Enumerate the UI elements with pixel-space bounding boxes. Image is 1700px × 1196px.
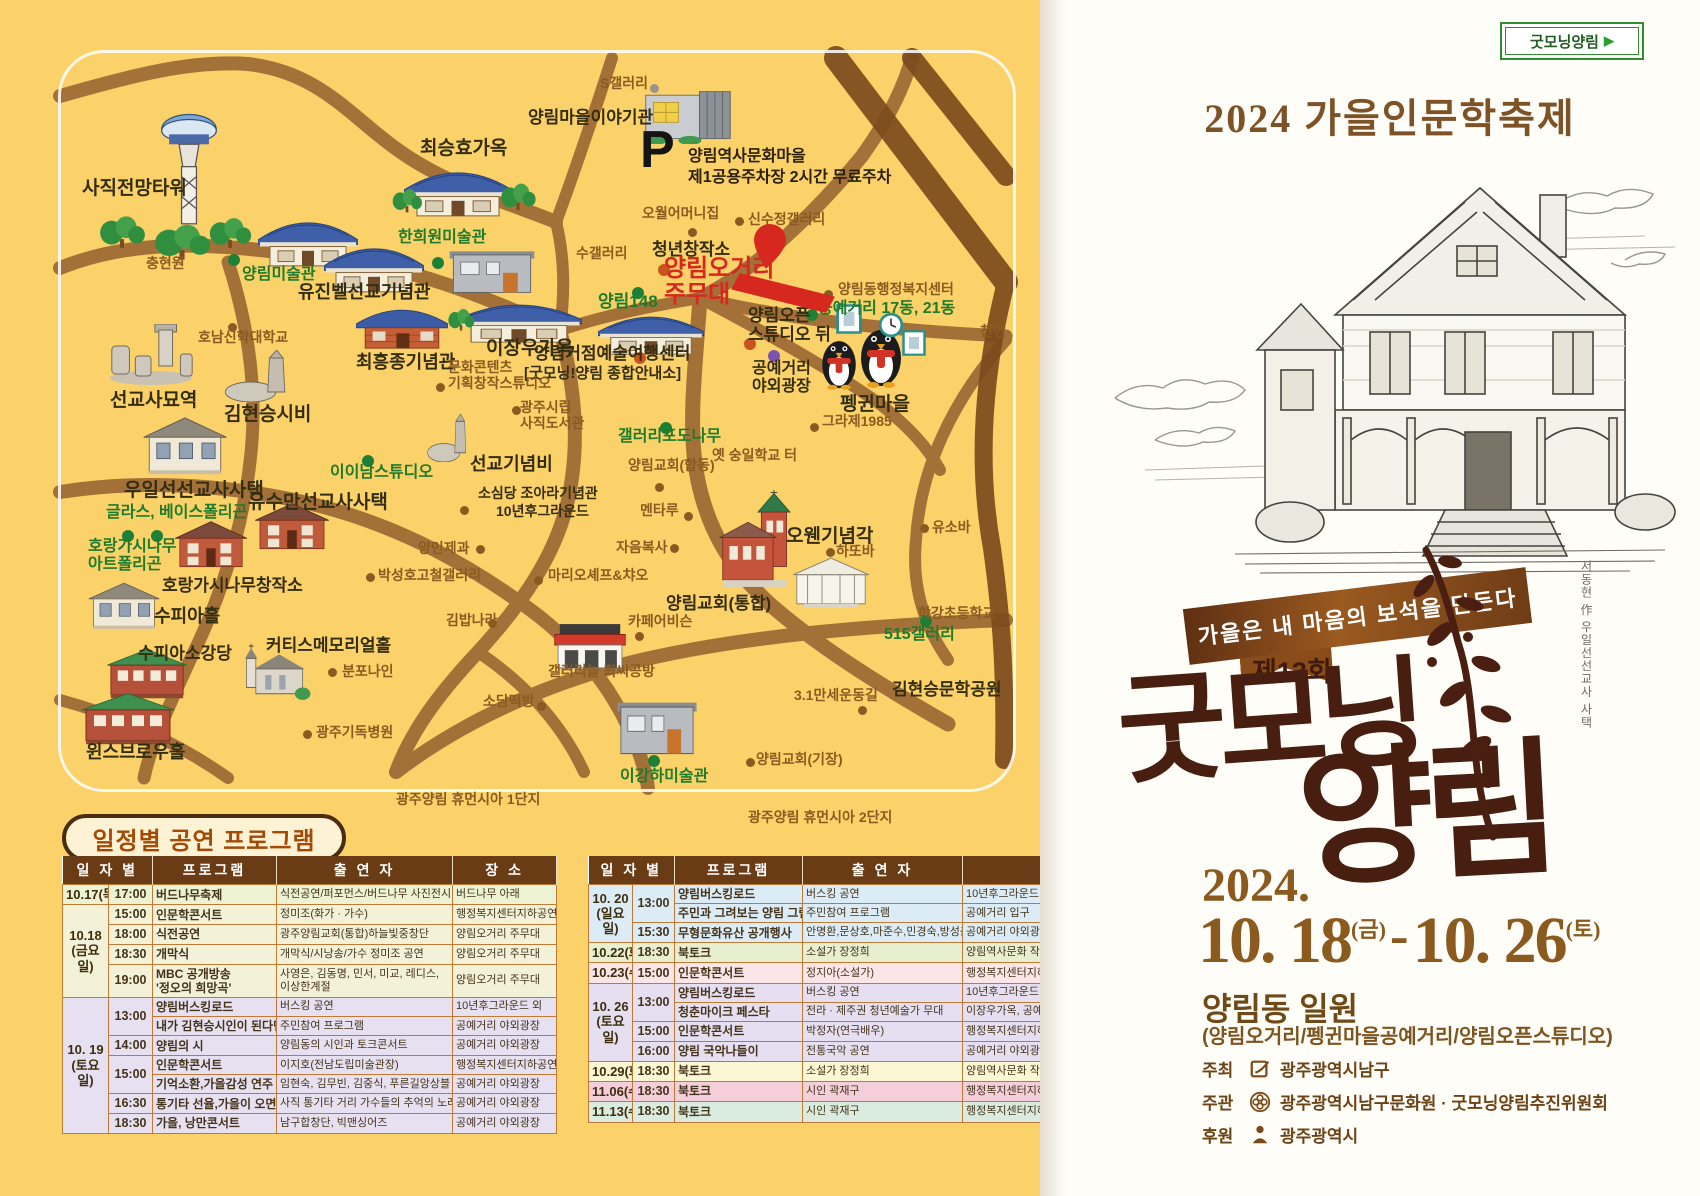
- schedule-section-title: 일정별 공연 프로그램: [62, 814, 346, 862]
- map-label: 공예거리 야외광장: [752, 360, 811, 396]
- gray2-illustration-icon: [614, 696, 700, 758]
- map-label: 유소바: [932, 520, 971, 536]
- schedule-performer: 전통국악 공연: [803, 1041, 963, 1061]
- map-marker-dot: [328, 668, 337, 677]
- schedule-program: 북토크: [675, 1061, 803, 1081]
- map-label: 양림교회(합동): [628, 458, 715, 474]
- artwork-credit: 서동현 作 우일선선교사 사택: [1578, 560, 1595, 790]
- map-label: 공예거리 17동, 21동: [818, 300, 955, 318]
- date-start-day: (금): [1351, 912, 1386, 944]
- schedule-row: 18:30개막식개막식/시낭송/가수 정미조 공연양림오거리 주무대: [63, 944, 557, 964]
- schedule-venue: 행정복지센터지하공연장: [963, 1102, 1040, 1122]
- map-label: 양림미술관: [242, 266, 316, 284]
- date-start: 10. 18: [1198, 908, 1351, 974]
- schedule-date: 10.22(화): [589, 943, 633, 963]
- schedule-time: 13:00: [109, 997, 153, 1035]
- schedule-column-header: 출 연 자: [803, 856, 963, 885]
- map-marker-dot: [688, 228, 697, 237]
- schedule-date: 11.06(수): [589, 1081, 633, 1101]
- map-label: 유수만선교사사택: [248, 492, 388, 513]
- schedule-performer: 양림동의 시인과 토크콘서트: [277, 1036, 453, 1056]
- schedule-performer: 박정자(연극배우): [803, 1022, 963, 1042]
- schedule-performer: 광주양림교회(통합)하늘빛중창단: [277, 925, 453, 945]
- schedule-row: 10.17(목)17:00버드나무축제식전공연/퍼포먼스/버드나무 사진전시버드…: [63, 885, 557, 905]
- schedule-table-week1: 일 자 별프로그램출 연 자장 소10.17(목)17:00버드나무축제식전공연…: [62, 856, 557, 1134]
- schedule-date: 10. 26 (토요일): [589, 983, 633, 1061]
- schedule-performer: 버스킹 공연: [803, 983, 963, 1002]
- schedule-program: 인문학콘서트: [675, 963, 803, 983]
- schedule-venue: 양림역사문화 작은도서관: [963, 1061, 1040, 1081]
- schedule-performer: 사영은, 김동명, 민서, 미교, 레디스, 이상한계절: [277, 964, 453, 997]
- organizer-list: 주최광주광역시남구주관광주광역시남구문화원 · 굿모닝양림추진위원회후원광주광역…: [1202, 1056, 1608, 1147]
- schedule-performer: 소설가 장정희: [803, 943, 963, 963]
- schedule-venue: 행정복지센터지하공연장: [963, 1081, 1040, 1101]
- schedule-venue: 공예거리 야외광장: [453, 1017, 557, 1036]
- map-label: 우일선선교사사택: [124, 480, 264, 501]
- schedule-program: 인문학콘서트: [153, 1055, 277, 1074]
- map-label: 사직전망타워: [82, 178, 187, 199]
- map-label: 양림교회(통합): [666, 594, 771, 613]
- western-illustration-icon: [84, 580, 164, 632]
- schedule-program: 주민과 그려보는 양림 그림여행: [675, 904, 803, 923]
- schedule-venue: 공예거리 야외광장: [963, 923, 1040, 943]
- schedule-time: 18:30: [633, 943, 675, 963]
- map-label: 3.1만세운동길: [794, 688, 878, 704]
- map-label: 양림거점예술여행센터: [534, 344, 690, 363]
- venue-detail: (양림오거리/펭귄마을공예거리/양림오픈스튜디오): [1202, 1020, 1613, 1049]
- schedule-row: 11.13(수)18:30북토크시인 곽재구행정복지센터지하공연장: [589, 1102, 1041, 1122]
- organizer-logo-icon: [1249, 1058, 1271, 1080]
- map-label: 문화콘텐츠 기획창작스튜디오: [448, 360, 551, 391]
- schedule-column-header: 일 자 별: [63, 856, 153, 885]
- schedule-time: 15:00: [109, 905, 153, 925]
- classic-illustration-icon: [786, 554, 876, 608]
- schedule-performer: 안명환,문상호,마준수,민경숙,방성춘,황승옥: [803, 923, 963, 943]
- schedule-program: 버드나무축제: [153, 885, 277, 905]
- map-label: 옛 숭일학교 터: [712, 448, 797, 464]
- frame-illustration-icon: [902, 330, 926, 356]
- penguin-illustration-icon: [818, 336, 860, 390]
- map-marker-dot: [746, 758, 755, 767]
- map-label: 최흥종기념관: [356, 352, 455, 372]
- map-label: 양림마을이야기관: [528, 108, 653, 127]
- map-marker-dot: [436, 383, 445, 392]
- map-marker-dot: [735, 217, 744, 226]
- organizer-role: 주관: [1202, 1089, 1240, 1114]
- map-label: 수피아홀: [154, 606, 220, 626]
- tree-illustration-icon: [498, 180, 538, 212]
- map-label: 김밥나라: [446, 613, 498, 629]
- schedule-program: 양림버스킹로드: [675, 885, 803, 904]
- map-label: 광주양림 휴먼시아 1단지: [396, 792, 540, 808]
- schedule-performer: 주민참여 프로그램: [277, 1017, 453, 1036]
- pamphlet-page: 양림마을이야기관최승효가옥사직전망타워유진벨선교기념관최흥종기념관이장우가옥선교…: [0, 0, 1700, 1196]
- schedule-program: MBC 공개방송 '정오의 희망곡': [153, 964, 277, 997]
- schedule-performer: 이지호(전남도립미술관장): [277, 1055, 453, 1074]
- schedule-date: 10.18 (금요일): [63, 905, 109, 998]
- schedule-table-week2: 일 자 별프로그램출 연 자10. 20 (일요일)13:00양림버스킹로드버스…: [588, 856, 1040, 1123]
- schedule-time: 15:00: [633, 963, 675, 983]
- organizer-row: 주관광주광역시남구문화원 · 굿모닝양림추진위원회: [1202, 1089, 1608, 1114]
- schedule-venue: 공예거리 입구: [963, 904, 1040, 923]
- map-panel: 양림마을이야기관최승효가옥사직전망타워유진벨선교기념관최흥종기념관이장우가옥선교…: [0, 0, 1040, 1196]
- map-label: 김현승시비: [224, 404, 311, 425]
- schedule-venue: 공예거리 야외광장: [453, 1094, 557, 1114]
- organizer-logo-icon: [1249, 1124, 1271, 1146]
- map-marker-dot: [460, 506, 469, 515]
- map-label: 최승효가옥: [420, 138, 507, 159]
- organizer-name: 광주광역시남구: [1280, 1056, 1389, 1081]
- map-label: 김현승문학공원: [892, 680, 1001, 699]
- date-end-day: (토): [1566, 912, 1601, 944]
- map-marker-dot: [858, 706, 867, 715]
- map-label: 카페어비슨: [628, 614, 692, 630]
- map-label: 갤러리늘 최씨공방: [548, 664, 655, 680]
- schedule-row: 16:30통기타 선율,가을이 오면사직 통기타 거리 가수들의 추억의 노래공…: [63, 1094, 557, 1114]
- map-marker-dot: [303, 730, 312, 739]
- schedule-time: 15:30: [633, 923, 675, 943]
- map-label: 천변: [980, 324, 1006, 340]
- schedule-program: 기억소환,가을감성 연주: [153, 1075, 277, 1094]
- schedule-program: 양림 국악나들이: [675, 1041, 803, 1061]
- map-label: 양림교회(기장): [756, 752, 843, 768]
- map-label: 양림동행정복지센터: [838, 282, 954, 298]
- schedule-row: 15:00인문학콘서트이지호(전남도립미술관장)행정복지센터지하공연장: [63, 1055, 557, 1074]
- map-label: 그라제1985: [822, 414, 892, 430]
- schedule-row: 14:00양림의 시양림동의 시인과 토크콘서트공예거리 야외광장: [63, 1036, 557, 1056]
- schedule-row: 10.22(화)18:30북토크소설가 장정희양림역사문화 작은도서관: [589, 943, 1041, 963]
- map-label: 커티스메모리얼홀: [266, 636, 391, 655]
- schedule-column-header: 장 소: [453, 856, 557, 885]
- map-marker-dot: [670, 544, 679, 553]
- map-marker-dot: [476, 545, 485, 554]
- map-label: 갤러리포도나무: [618, 428, 721, 446]
- map-label: 분포나인: [342, 664, 394, 680]
- schedule-row: 10. 19 (토요일)13:00양림버스킹로드버스킹 공연10년후그라운드 외: [63, 997, 557, 1016]
- poster-title: 2024 가을인문학축제: [1120, 86, 1660, 144]
- schedule-program: 양림버스킹로드: [153, 997, 277, 1016]
- map-marker-dot: [537, 702, 546, 711]
- map-label: 이이남스튜디오: [330, 464, 433, 482]
- schedule-time: 18:00: [109, 925, 153, 945]
- tower-illustration-icon: [146, 112, 232, 230]
- schedule-date: 10. 19 (토요일): [63, 997, 109, 1133]
- schedule-row: 10.29(화)18:30북토크소설가 장정희양림역사문화 작은도서관: [589, 1061, 1041, 1081]
- schedule-program: 식전공연: [153, 925, 277, 945]
- schedule-column-header: 프로그램: [675, 856, 803, 885]
- badge-arrow-icon: ▶: [1604, 33, 1614, 49]
- organizer-role: 주최: [1202, 1056, 1240, 1081]
- organizer-role: 후원: [1202, 1122, 1240, 1147]
- schedule-time: 18:30: [633, 1061, 675, 1081]
- schedule-row: 15:00인문학콘서트박정자(연극배우)행정복지센터지하공연장: [589, 1022, 1041, 1042]
- stage-pin-icon: [749, 222, 789, 272]
- map-label: 충현원: [146, 256, 185, 272]
- schedule-program: 양림버스킹로드: [675, 983, 803, 1002]
- map-marker-dot: [684, 512, 693, 521]
- schedule-date: 11.13(수): [589, 1102, 633, 1122]
- map-label: 호랑가시나무창작소: [162, 576, 303, 595]
- festival-dates: 10. 18 (금) - 10. 26 (토): [1198, 908, 1600, 974]
- map-label: 광주양림 휴먼시아 2단지: [748, 810, 892, 826]
- map-label: 515갤러리: [884, 626, 955, 644]
- schedule-date: 10.29(화): [589, 1061, 633, 1081]
- schedule-venue: 양림오거리 주무대: [453, 925, 557, 945]
- map-marker-dot: [826, 548, 835, 557]
- tree-illustration-icon: [206, 214, 254, 250]
- schedule-performer: 시인 곽재구: [803, 1081, 963, 1101]
- map-label: 마리오셰프&챠오: [548, 568, 648, 584]
- schedule-column-header: 프로그램: [153, 856, 277, 885]
- brickgreen-illustration-icon: [78, 690, 178, 746]
- map-label: S갤러리: [600, 76, 648, 92]
- map-marker-dot: [920, 524, 929, 533]
- map-label: 유진벨선교기념관: [298, 282, 430, 302]
- schedule-program: 개막식: [153, 944, 277, 964]
- schedule-venue: 양림오거리 주무대: [453, 964, 557, 997]
- tree-illustration-icon: [390, 186, 424, 214]
- stones-illustration-icon: [102, 324, 200, 386]
- schedule-venue: 공예거리 야외광장: [453, 1036, 557, 1056]
- schedule-time: 19:00: [109, 964, 153, 997]
- schedule-performer: 소설가 장정희: [803, 1061, 963, 1081]
- schedule-venue: 양림역사문화 작은도서관: [963, 943, 1040, 963]
- schedule-venue: 행정복지센터지하공연장: [963, 963, 1040, 983]
- page-fold-shadow: [1040, 0, 1066, 1196]
- gray2-illustration-icon: [446, 246, 538, 296]
- date-end: 10. 26: [1413, 908, 1566, 974]
- map-label: 호남신학대학교: [198, 330, 288, 346]
- tree-illustration-icon: [96, 212, 148, 250]
- schedule-column-header: 일 자 별: [589, 856, 675, 885]
- schedule-performer: 주민참여 프로그램: [803, 904, 963, 923]
- map-marker-dot: [648, 755, 660, 767]
- schedule-date: 10.17(목): [63, 885, 109, 905]
- schedule-program: 인문학콘서트: [153, 905, 277, 925]
- map-label: 소심당 조아라기념관: [478, 486, 598, 502]
- schedule-venue: 공예거리 야외광장: [453, 1114, 557, 1134]
- schedule-performer: 남구합창단, 빅맨싱어즈: [277, 1114, 453, 1134]
- map-marker-dot: [635, 632, 644, 641]
- schedule-row: 16:00양림 국악나들이전통국악 공연공예거리 야외광장: [589, 1041, 1041, 1061]
- schedule-row: 19:00MBC 공개방송 '정오의 희망곡'사영은, 김동명, 민서, 미교,…: [63, 964, 557, 997]
- map-label: 호랑가시나무 아트폴리곤: [88, 538, 176, 574]
- schedule-performer: 임현숙, 김무빈, 김중식, 푸른길앙상블: [277, 1075, 453, 1094]
- parking-note-line2: 제1공용주차장 2시간 무료주차: [688, 163, 891, 187]
- map-label: 학강초등학교: [918, 606, 995, 622]
- map-marker-dot: [534, 576, 543, 585]
- organizer-row: 후원광주광역시: [1202, 1122, 1608, 1147]
- schedule-program: 양림의 시: [153, 1036, 277, 1056]
- schedule-performer: 정지아(소설가): [803, 963, 963, 983]
- schedule-row: 15:30무형문화유산 공개행사안명환,문상호,마준수,민경숙,방성춘,황승옥공…: [589, 923, 1041, 943]
- schedule-column-header: [963, 856, 1040, 885]
- schedule-time: 18:30: [633, 1081, 675, 1101]
- badge-label: 굿모닝양림: [1530, 31, 1599, 52]
- schedule-time: 17:00: [109, 885, 153, 905]
- schedule-venue: 이장우가옥, 공예거리 외: [963, 1002, 1040, 1021]
- map-label: 자음복사: [616, 540, 668, 556]
- organizer-logo-icon: [1249, 1091, 1271, 1113]
- map-marker-dot: [366, 573, 375, 582]
- schedule-venue: 10년후그라운드 외: [453, 997, 557, 1016]
- schedule-performer: 식전공연/퍼포먼스/버드나무 사진전시: [277, 885, 453, 905]
- schedule-performer: 버스킹 공연: [803, 885, 963, 904]
- map-label: 박성호고철갤러리: [378, 568, 481, 584]
- schedule-time: 18:30: [109, 944, 153, 964]
- brick2-illustration-icon: [172, 520, 250, 570]
- schedule-column-header: 출 연 자: [277, 856, 453, 885]
- map-marker-dot: [655, 483, 664, 492]
- schedule-time: 13:00: [633, 885, 675, 923]
- schedule-row: 10.23(수)15:00인문학콘서트정지아(소설가)행정복지센터지하공연장: [589, 963, 1041, 983]
- schedule-time: 16:30: [109, 1094, 153, 1114]
- map-label: 수피아소강당: [138, 644, 232, 663]
- schedule-program: 인문학콘서트: [675, 1022, 803, 1042]
- map-label: 광주시립 사직도서관: [520, 400, 584, 431]
- schedule-row: 18:00식전공연광주양림교회(통합)하늘빛중창단양림오거리 주무대: [63, 925, 557, 945]
- map-label: 하또바: [836, 544, 875, 560]
- schedule-performer: 정미조(화가 · 가수): [277, 905, 453, 925]
- schedule-venue: 버드나무 아래: [453, 885, 557, 905]
- branch-illustration: [1398, 542, 1528, 842]
- schedule-time: 18:30: [633, 1102, 675, 1122]
- map-label: 멘타루: [640, 503, 679, 519]
- schedule-time: 18:30: [109, 1114, 153, 1134]
- schedule-program: 가을, 낭만콘서트: [153, 1114, 277, 1134]
- schedule-date: 10. 20 (일요일): [589, 885, 633, 943]
- schedule-row: 10.18 (금요일)15:00인문학콘서트정미조(화가 · 가수)행정복지센터…: [63, 905, 557, 925]
- schedule-performer: 버스킹 공연: [277, 997, 453, 1016]
- schedule-venue: 양림오거리 주무대: [453, 944, 557, 964]
- schedule-time: 15:00: [633, 1022, 675, 1042]
- map-label: 수갤러리: [576, 246, 628, 262]
- schedule-program: 무형문화유산 공개행사: [675, 923, 803, 943]
- schedule-time: 13:00: [633, 983, 675, 1021]
- schedule-performer: 사직 통기타 거리 가수들의 추억의 노래: [277, 1094, 453, 1114]
- house-sketch-illustration: [1085, 140, 1700, 580]
- schedule-program: 북토크: [675, 943, 803, 963]
- map-label: 양림148: [598, 292, 658, 311]
- map-label: 글라스, 베이스폴리곤: [106, 504, 247, 522]
- schedule-performer: 전라 · 제주권 청년예술가 무대: [803, 1002, 963, 1021]
- organizer-row: 주최광주광역시남구: [1202, 1056, 1608, 1081]
- organizer-name: 광주광역시남구문화원 · 굿모닝양림추진위원회: [1280, 1089, 1608, 1114]
- brick-illustration-icon: [356, 300, 448, 350]
- schedule-program: 청춘마이크 페스타: [675, 1002, 803, 1021]
- map-label: 선교기념비: [470, 454, 553, 474]
- schedule-row: 18:30가을, 낭만콘서트남구합창단, 빅맨싱어즈공예거리 야외광장: [63, 1114, 557, 1134]
- map-label: 소담떡방: [483, 694, 535, 710]
- organizer-name: 광주광역시: [1280, 1122, 1358, 1147]
- tree-illustration-icon: [446, 306, 476, 332]
- date-dash: -: [1390, 908, 1409, 964]
- schedule-venue: 행정복지센터지하공연장: [963, 1022, 1040, 1042]
- schedule-performer: 개막식/시낭송/가수 정미조 공연: [277, 944, 453, 964]
- schedule-venue: 공예거리 야외광장: [453, 1075, 557, 1094]
- map-marker-dot: [432, 257, 444, 269]
- map-label: 선교사묘역: [110, 390, 197, 411]
- schedule-venue: 행정복지센터지하공연장: [453, 1055, 557, 1074]
- schedule-time: 16:00: [633, 1041, 675, 1061]
- western-illustration-icon: [138, 414, 232, 478]
- schedule-row: 10. 26 (토요일)13:00양림버스킹로드버스킹 공연10년후그라운드 외: [589, 983, 1041, 1002]
- schedule-venue: 공예거리 야외광장: [963, 1041, 1040, 1061]
- map-label: 이강하미술관: [620, 768, 708, 786]
- map-marker-dot: [810, 423, 819, 432]
- schedule-venue: 행정복지센터지하공연장: [453, 905, 557, 925]
- schedule-program: 북토크: [675, 1081, 803, 1101]
- schedule-program: 내가 김현승시인이 된다면: [153, 1017, 277, 1036]
- parking-icon: P: [640, 124, 675, 176]
- schedule-row: 10. 20 (일요일)13:00양림버스킹로드버스킹 공연10년후그라운드 외: [589, 885, 1041, 904]
- map-label: 광주기독병원: [316, 725, 393, 741]
- map-label: 윈스브로우홀: [86, 742, 185, 762]
- map-label: 10년후그라운드: [496, 504, 589, 520]
- schedule-program: 통기타 선율,가을이 오면: [153, 1094, 277, 1114]
- schedule-performer: 시인 곽재구: [803, 1102, 963, 1122]
- schedule-time: 14:00: [109, 1036, 153, 1056]
- schedule-program: 북토크: [675, 1102, 803, 1122]
- schedule-date: 10.23(수): [589, 963, 633, 983]
- schedule-venue: 10년후그라운드 외: [963, 885, 1040, 904]
- map-marker-dot: [228, 254, 240, 266]
- map-label: 오월어머니집: [642, 206, 719, 222]
- map-label: 양인제과: [418, 541, 470, 557]
- monument-illustration-icon: [220, 350, 310, 402]
- schedule-venue: 10년후그라운드 외: [963, 983, 1040, 1002]
- map-label: 한희원미술관: [398, 229, 486, 247]
- schedule-time: 15:00: [109, 1055, 153, 1093]
- map-marker-dot: [650, 84, 659, 93]
- goodmorning-yangnim-badge-button[interactable]: 굿모닝양림 ▶: [1500, 22, 1644, 60]
- schedule-row: 11.06(수)18:30북토크시인 곽재구행정복지센터지하공연장: [589, 1081, 1041, 1101]
